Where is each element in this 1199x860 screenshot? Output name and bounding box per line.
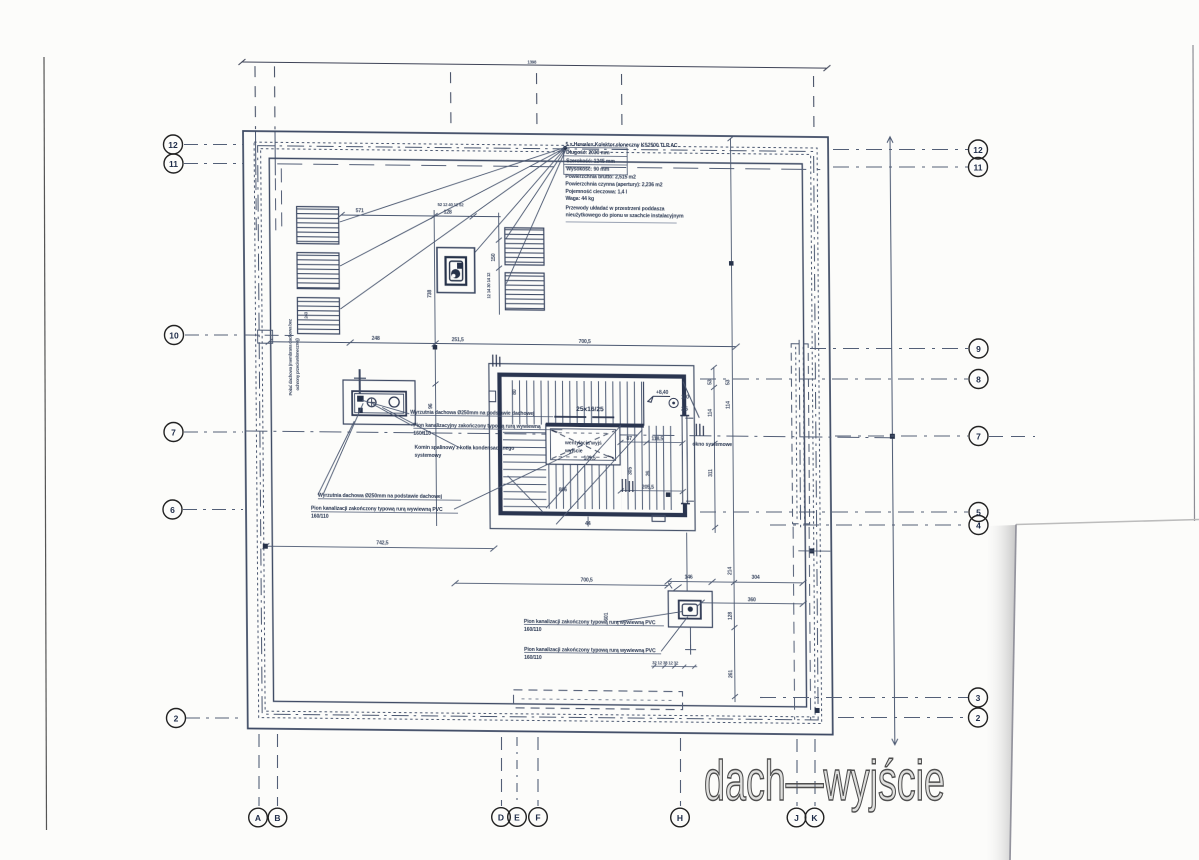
svg-text:6: 6 (170, 505, 175, 515)
svg-text:53: 53 (725, 379, 731, 385)
svg-text:7: 7 (976, 432, 981, 442)
svg-text:Szerokość: 1245 mm: Szerokość: 1245 mm (566, 158, 615, 165)
svg-text:360: 360 (748, 597, 756, 603)
svg-text:26: 26 (646, 471, 652, 477)
svg-text:12: 12 (168, 140, 178, 150)
svg-text:128: 128 (728, 612, 734, 620)
svg-text:160/110: 160/110 (524, 655, 542, 661)
svg-text:700,5: 700,5 (581, 578, 593, 584)
svg-text:25x16/25: 25x16/25 (576, 406, 604, 413)
svg-text:12 14 30 14 12: 12 14 30 14 12 (486, 272, 491, 299)
svg-text:700,5: 700,5 (579, 339, 591, 345)
svg-text:146: 146 (685, 575, 693, 581)
svg-text:109,5: 109,5 (584, 456, 596, 462)
svg-text:ochrony przeciwsłonecznej): ochrony przeciwsłonecznej) (295, 338, 300, 391)
svg-text:Powierzchnia czynna (apertury): Powierzchnia czynna (apertury): 2,236 m2 (565, 181, 662, 188)
svg-text:2: 2 (174, 714, 179, 724)
svg-text:8: 8 (976, 375, 981, 385)
svg-text:304: 304 (752, 575, 760, 581)
svg-text:5: 5 (976, 508, 981, 518)
svg-text:261: 261 (728, 670, 734, 678)
svg-text:wentylacja wyjś: wentylacja wyjś (564, 440, 602, 446)
svg-text:Waga: 44 kg: Waga: 44 kg (565, 196, 593, 202)
svg-text:Długość: 2030 mm: Długość: 2030 mm (566, 150, 610, 156)
svg-text:96: 96 (428, 403, 434, 409)
svg-text:118,5: 118,5 (651, 436, 663, 442)
svg-text:738: 738 (427, 290, 433, 298)
svg-text:+8,40: +8,40 (656, 390, 668, 396)
svg-text:11: 11 (169, 159, 178, 169)
svg-text:571: 571 (356, 208, 364, 214)
svg-text:F: F (535, 812, 540, 822)
svg-text:A: A (255, 813, 261, 823)
svg-text:7: 7 (171, 428, 176, 438)
svg-text:214: 214 (727, 567, 733, 575)
svg-text:Połać dachowa (membrana dachow: Połać dachowa (membrana dachowa bez (288, 319, 294, 395)
svg-text:2: 2 (976, 713, 981, 723)
svg-text:806: 806 (559, 487, 567, 493)
svg-text:53: 53 (707, 379, 713, 385)
svg-text:dach—wyjście: dach—wyjście (704, 749, 945, 813)
svg-text:systemowy: systemowy (415, 453, 442, 459)
svg-text:87: 87 (626, 436, 632, 442)
svg-text:305: 305 (628, 467, 634, 475)
svg-text:160/110: 160/110 (311, 514, 329, 520)
svg-text:114: 114 (726, 401, 732, 409)
svg-text:D: D (498, 812, 504, 822)
svg-text:B: B (274, 813, 280, 823)
svg-text:okno systemowe: okno systemowe (692, 442, 732, 448)
svg-text:H: H (677, 813, 683, 823)
svg-text:4: 4 (976, 521, 981, 531)
svg-text:128: 128 (444, 210, 452, 216)
svg-text:Przewody układać w przestrzeni: Przewody układać w przestrzeni poddasza (566, 205, 665, 212)
svg-text:12: 12 (973, 145, 983, 155)
svg-text:110: 110 (681, 395, 689, 401)
svg-text:742,5: 742,5 (376, 540, 388, 546)
svg-text:205,5: 205,5 (642, 485, 654, 491)
svg-text:K: K (811, 813, 818, 823)
svg-text:248: 248 (372, 336, 380, 342)
svg-text:J: J (794, 813, 799, 823)
svg-text:311: 311 (708, 469, 714, 477)
svg-text:11: 11 (974, 163, 983, 173)
svg-text:44: 44 (585, 521, 591, 527)
svg-text:243: 243 (303, 311, 308, 318)
svg-text:3: 3 (976, 693, 981, 703)
svg-text:E: E (514, 812, 520, 822)
svg-text:Wysokość: 90 mm: Wysokość: 90 mm (566, 166, 609, 172)
svg-text:nieużytkowego do pionu w szach: nieużytkowego do pionu w szachcie instal… (566, 212, 684, 219)
svg-text:wyjście: wyjście (564, 448, 583, 454)
svg-text:160/110: 160/110 (413, 431, 431, 437)
svg-text:160/110: 160/110 (524, 627, 542, 633)
svg-text:Komin spalinowy z kotła konden: Komin spalinowy z kotła kondensacyjnego (414, 445, 514, 452)
svg-text:1398: 1398 (527, 59, 537, 64)
svg-text:Pojemność cieczowa: 1,4: Pojemność cieczowa: 1,4 l (565, 189, 627, 196)
svg-text:80: 80 (512, 389, 518, 395)
svg-text:10: 10 (169, 331, 179, 341)
svg-text:150: 150 (491, 253, 497, 261)
svg-text:114: 114 (708, 409, 714, 417)
svg-text:251,5: 251,5 (452, 337, 464, 343)
svg-text:9: 9 (976, 344, 981, 354)
svg-text:52 12 40 12 52: 52 12 40 12 52 (438, 202, 465, 207)
svg-text:2,5: 2,5 (681, 407, 688, 413)
